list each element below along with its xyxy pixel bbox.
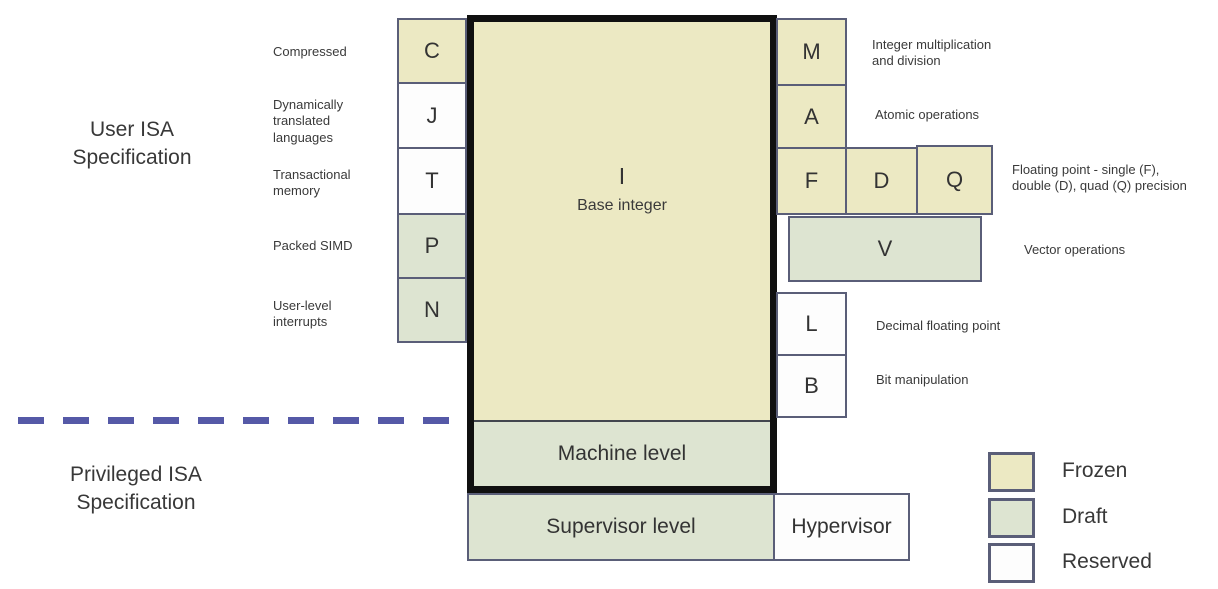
base-isa-outline: I Base integer Machine level [467,15,777,493]
machine-level-label: Machine level [558,442,686,466]
label-atomic-operations: Atomic operations [875,107,979,123]
user-privileged-separator-line [18,417,455,424]
ext-letter-b: B [804,373,819,399]
ext-box-j: J [397,82,467,149]
ext-box-a: A [776,84,847,149]
base-letter-i: I [474,163,770,190]
label-transactional-memory: Transactional memory [273,167,351,200]
ext-letter-c: C [424,38,440,64]
ext-box-v: V [788,216,982,282]
label-integer-multiplication-division: Integer multiplication and division [872,37,991,70]
supervisor-level-label: Supervisor level [546,515,695,539]
legend-swatch-reserved [988,543,1035,583]
ext-letter-d: D [874,168,890,194]
ext-letter-l: L [805,311,817,337]
label-packed-simd: Packed SIMD [273,238,352,254]
ext-box-b: B [776,354,847,418]
ext-letter-n: N [424,297,440,323]
ext-letter-m: M [802,39,820,65]
user-isa-title: User ISA Specification [32,116,232,171]
label-compressed: Compressed [273,44,347,60]
legend-label-reserved: Reserved [1062,550,1152,574]
ext-letter-v: V [878,236,893,262]
machine-level-box: Machine level [474,420,770,486]
supervisor-level-box: Supervisor level [467,493,775,561]
legend-label-draft: Draft [1062,505,1108,529]
ext-box-q: Q [916,145,993,215]
ext-letter-f: F [805,168,818,194]
ext-box-t: T [397,147,467,215]
ext-letter-p: P [425,233,440,259]
base-integer-box: I Base integer [474,22,770,420]
ext-box-c: C [397,18,467,84]
label-floating-point-precision: Floating point - single (F), double (D),… [1012,162,1187,195]
ext-letter-j: J [427,103,438,129]
privileged-isa-title: Privileged ISA Specification [36,461,236,516]
legend-swatch-draft [988,498,1035,538]
ext-letter-q: Q [946,167,963,193]
legend-swatch-frozen [988,452,1035,492]
label-user-level-interrupts: User-level interrupts [273,298,332,331]
legend-label-frozen: Frozen [1062,459,1127,483]
label-bit-manipulation: Bit manipulation [876,372,969,388]
ext-box-d: D [845,147,918,215]
base-integer-text: I Base integer [474,163,770,215]
hypervisor-box: Hypervisor [773,493,910,561]
base-integer-label: Base integer [474,197,770,215]
label-vector-operations: Vector operations [1024,242,1125,258]
ext-box-l: L [776,292,847,356]
ext-box-n: N [397,277,467,343]
ext-box-m: M [776,18,847,86]
label-decimal-floating-point: Decimal floating point [876,318,1000,334]
riscv-isa-diagram: User ISA Specification Privileged ISA Sp… [0,0,1218,589]
ext-letter-a: A [804,104,819,130]
hypervisor-label: Hypervisor [791,515,891,539]
label-dynamically-translated-languages: Dynamically translated languages [273,97,343,146]
ext-letter-t: T [425,168,438,194]
ext-box-f: F [776,147,847,215]
ext-box-p: P [397,213,467,279]
